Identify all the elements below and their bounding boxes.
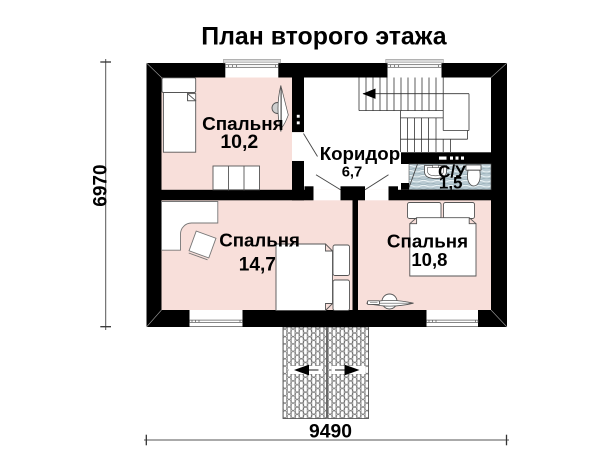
svg-text:Спальня: Спальня (219, 230, 300, 251)
svg-text:1,5: 1,5 (439, 174, 463, 193)
svg-text:9490: 9490 (309, 422, 352, 443)
svg-text:10,2: 10,2 (220, 131, 258, 153)
svg-text:6970: 6970 (91, 164, 112, 206)
svg-text:10,8: 10,8 (411, 249, 447, 270)
svg-text:Коридор: Коридор (320, 143, 400, 164)
svg-text:14,7: 14,7 (239, 254, 276, 275)
svg-text:План второго этажа: План второго этажа (201, 22, 447, 50)
svg-text:6,7: 6,7 (342, 165, 363, 181)
